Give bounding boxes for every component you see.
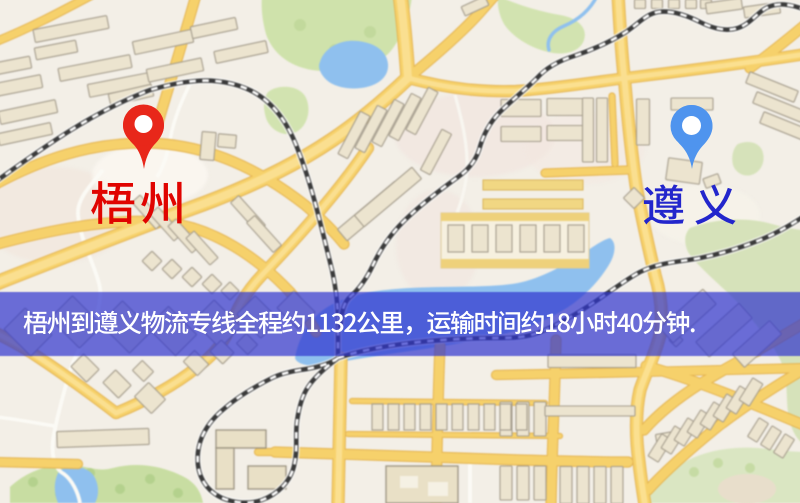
svg-text:梧州到遵义物流专线全程约1132公里，运输时间约18小时40: 梧州到遵义物流专线全程约1132公里，运输时间约18小时40分钟. [23, 304, 695, 340]
svg-text:梧州: 梧州 [90, 168, 190, 234]
svg-text:遵义: 遵义 [642, 172, 746, 234]
